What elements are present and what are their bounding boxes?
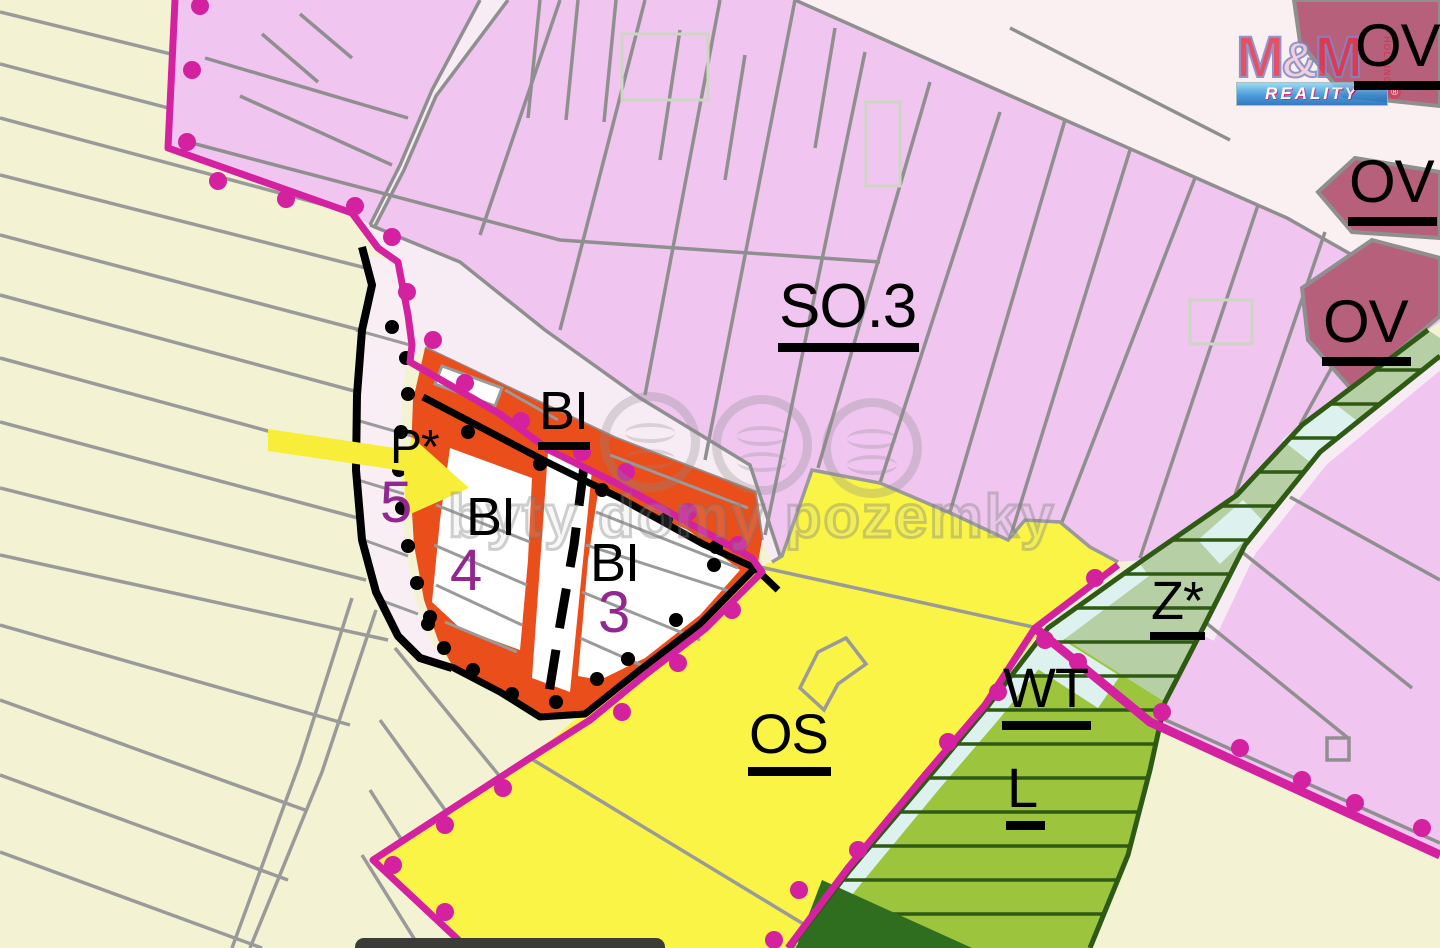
zone-label-ov-2: OV bbox=[1348, 152, 1437, 226]
zone-label-ov-3: OV bbox=[1322, 292, 1411, 366]
zone-number-3: 3 bbox=[598, 584, 629, 642]
zoning-map[interactable]: byty domy pozemky M&M REALITY ® HOLDING … bbox=[0, 0, 1440, 948]
zone-label-bi-top: BI bbox=[538, 384, 590, 450]
zone-number-5: 5 bbox=[380, 474, 411, 532]
zone-label-wt: WT bbox=[1002, 660, 1091, 730]
map-canvas[interactable] bbox=[0, 0, 1440, 948]
zone-label-p-star: P* bbox=[390, 424, 439, 472]
house-circle-icon bbox=[600, 392, 700, 492]
zone-label-z-star: Z* bbox=[1150, 574, 1205, 640]
zone-label-so3: SO.3 bbox=[778, 276, 919, 352]
zone-number-4: 4 bbox=[450, 542, 481, 600]
zone-label-l: L bbox=[1006, 760, 1045, 830]
zone-label-os: OS bbox=[748, 706, 831, 776]
zone-label-ov-1: OV bbox=[1354, 16, 1440, 90]
watermark-text: byty domy pozemky bbox=[448, 482, 1056, 551]
zone-label-bi-4: BI bbox=[466, 490, 515, 544]
waves-circle-icon bbox=[712, 395, 812, 495]
bottom-overlay-bar bbox=[355, 938, 665, 948]
